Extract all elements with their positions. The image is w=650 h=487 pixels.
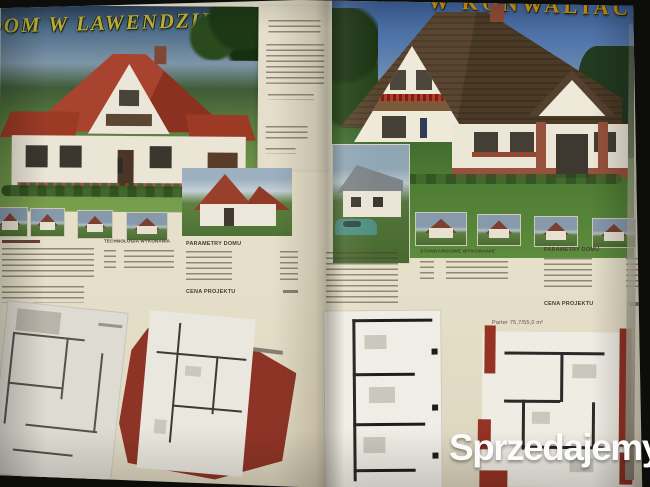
furniture-symbol bbox=[364, 335, 386, 349]
thumb-wall bbox=[40, 222, 56, 230]
spec-values bbox=[124, 250, 174, 268]
thumb-wall bbox=[604, 232, 624, 240]
spec-labels bbox=[104, 250, 116, 268]
text-lines bbox=[268, 94, 314, 100]
wall-line bbox=[4, 332, 16, 424]
technology-column: TECHNOLOGIA WYKONANIA bbox=[104, 240, 180, 280]
window bbox=[351, 197, 361, 207]
left-page: DOM W LAWENDZIE bbox=[0, 0, 332, 487]
right-page: W KONWALIACH bbox=[332, 0, 650, 487]
left-porch-roof bbox=[0, 111, 80, 138]
watermark: Sprzedajemy .pl bbox=[449, 429, 650, 466]
floorplan-gray bbox=[0, 300, 129, 486]
house-thumbnail bbox=[415, 212, 467, 246]
photo-of-open-catalog: DOM W LAWENDZIE bbox=[0, 0, 650, 487]
watermark-text: Sprzedajemy bbox=[449, 429, 650, 466]
foliage-overlay bbox=[173, 5, 258, 61]
gable-window bbox=[119, 90, 139, 106]
left-house-chimney bbox=[154, 46, 166, 64]
wall-line bbox=[352, 319, 432, 323]
parameter-labels bbox=[186, 251, 232, 281]
text-lines bbox=[266, 148, 296, 154]
porch-pillar bbox=[598, 122, 608, 178]
floorplan-bw bbox=[323, 309, 443, 487]
house-thumbnail bbox=[126, 212, 168, 241]
wall-line bbox=[93, 353, 103, 433]
inset-wall bbox=[343, 191, 401, 217]
wall-line bbox=[25, 424, 97, 434]
person-figure bbox=[420, 118, 427, 138]
parameter-labels bbox=[544, 258, 592, 290]
wall-stub bbox=[432, 453, 438, 459]
floorplan-red-frame bbox=[114, 320, 301, 487]
price-value-bar bbox=[283, 290, 298, 293]
plan-caption-right: Parter 75,7/55,0 m² bbox=[492, 321, 543, 327]
left-secondary-house-photo bbox=[182, 168, 292, 236]
house-thumbnail bbox=[477, 214, 521, 246]
spec-labels bbox=[420, 261, 434, 280]
standard-column: STANDARDOWE WYKONANIE bbox=[420, 250, 538, 294]
wall-line bbox=[352, 319, 356, 481]
house-thumbnail bbox=[30, 208, 65, 237]
red-wall-block bbox=[479, 470, 507, 487]
plan-caption-bar bbox=[98, 323, 122, 328]
thumb-wall bbox=[137, 226, 156, 234]
window bbox=[26, 145, 48, 167]
plan-shaded-room bbox=[15, 308, 61, 334]
house-thumbnail bbox=[534, 216, 578, 247]
text-lines bbox=[266, 126, 308, 139]
thumb-wall bbox=[489, 229, 509, 238]
text-lines bbox=[2, 248, 94, 280]
red-wall-bar bbox=[484, 325, 495, 373]
wall-line bbox=[560, 352, 563, 402]
contact-info-panel bbox=[257, 6, 332, 171]
wall-line bbox=[13, 448, 73, 456]
plan-white-area bbox=[137, 310, 256, 477]
wall-line bbox=[60, 338, 68, 400]
window bbox=[474, 132, 498, 152]
wall-line bbox=[353, 373, 415, 376]
price-label: CENA PROJEKTU bbox=[186, 290, 235, 296]
inset-house-photo bbox=[332, 144, 410, 264]
window bbox=[373, 197, 383, 207]
house-thumbnail bbox=[0, 207, 28, 237]
furniture-symbol bbox=[369, 387, 395, 403]
teal-car bbox=[335, 219, 377, 235]
furniture-symbol bbox=[363, 437, 385, 453]
parameters-heading: PARAMETRY DOMU bbox=[186, 242, 241, 248]
house-thumbnail bbox=[77, 210, 113, 239]
technology-heading: TECHNOLOGIA WYKONANIA bbox=[104, 240, 170, 245]
wall-line bbox=[354, 469, 416, 473]
wall-line bbox=[172, 405, 242, 413]
window-flower-box bbox=[472, 152, 536, 157]
furniture-symbol bbox=[185, 366, 202, 377]
text-lines bbox=[268, 20, 320, 33]
wall-line bbox=[353, 423, 425, 426]
thumb-wall bbox=[546, 231, 566, 240]
porch-doorway bbox=[556, 134, 588, 178]
person-figure bbox=[118, 158, 123, 173]
gable-balcony bbox=[106, 114, 152, 126]
furniture-symbol bbox=[154, 419, 167, 434]
furniture-symbol bbox=[572, 364, 596, 378]
description-column bbox=[2, 240, 96, 304]
porch-pillar bbox=[536, 122, 546, 178]
door bbox=[224, 208, 234, 226]
right-house-chimney bbox=[490, 4, 504, 22]
column-heading-bar bbox=[2, 240, 40, 243]
standard-heading: STANDARDOWE WYKONANIE bbox=[420, 250, 495, 255]
furniture-symbol bbox=[532, 412, 550, 424]
wall-line bbox=[211, 356, 218, 414]
parameters-heading: PARAMETRY DOMU bbox=[544, 248, 599, 254]
text-lines bbox=[266, 44, 324, 84]
porch bbox=[528, 70, 616, 178]
wall-line bbox=[8, 382, 64, 390]
parameters-column-left: PARAMETRY DOMU CENA PROJEKTU bbox=[186, 242, 298, 302]
window bbox=[150, 146, 172, 168]
wall-stub bbox=[432, 405, 438, 411]
parameter-values bbox=[280, 251, 298, 281]
thumb-wall bbox=[87, 224, 103, 232]
spec-values bbox=[446, 261, 508, 280]
balcony-rail bbox=[370, 101, 454, 111]
wall-stub bbox=[432, 349, 438, 355]
wall-line bbox=[157, 351, 247, 361]
wall-line bbox=[504, 352, 604, 356]
window bbox=[60, 146, 82, 168]
wall-line bbox=[169, 323, 181, 443]
lower-window bbox=[382, 116, 406, 138]
catalog-spread: DOM W LAWENDZIE bbox=[0, 0, 650, 487]
price-label: CENA PROJEKTU bbox=[544, 302, 593, 308]
car-window bbox=[343, 221, 361, 227]
wall-line bbox=[504, 400, 560, 403]
balcony-flowers bbox=[372, 94, 452, 101]
inset-roof bbox=[337, 165, 403, 193]
thumb-wall bbox=[2, 221, 18, 229]
secondary-house-wall bbox=[200, 204, 276, 226]
thumb-wall bbox=[429, 228, 453, 238]
description-lines bbox=[326, 252, 398, 306]
